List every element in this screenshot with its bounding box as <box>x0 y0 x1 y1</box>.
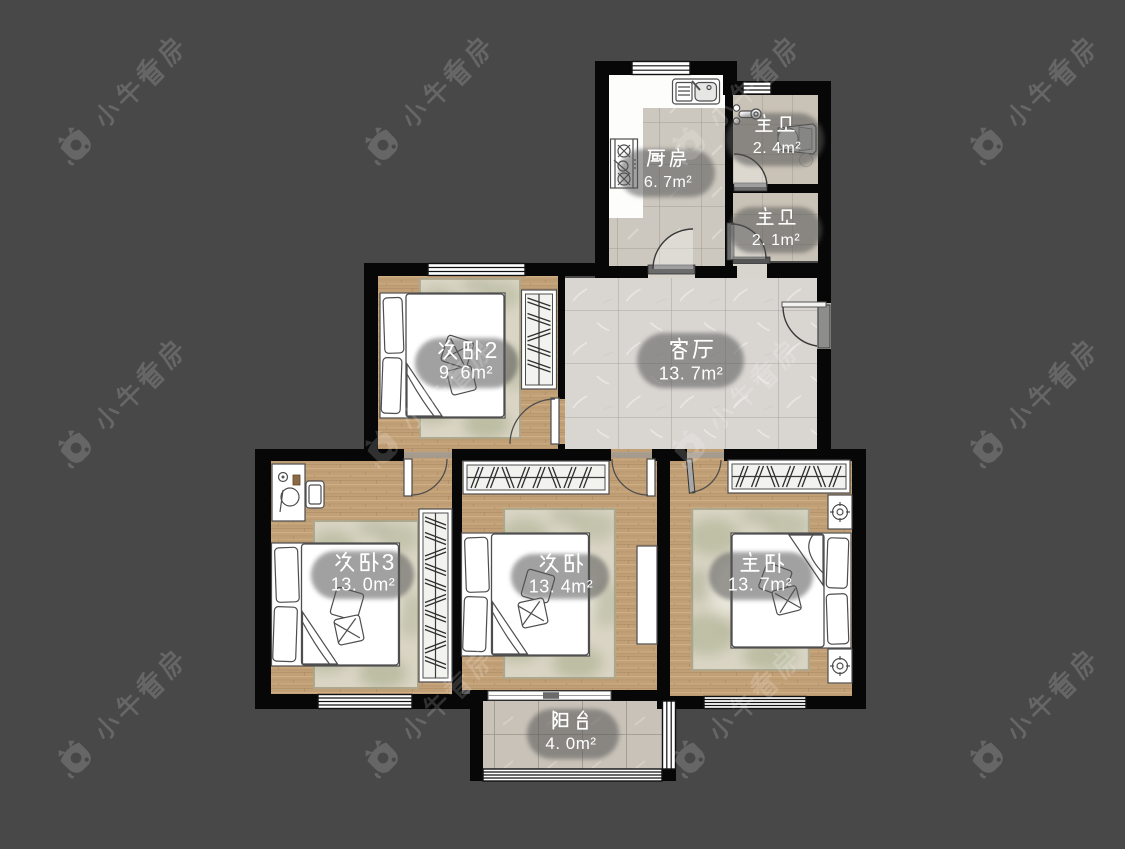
svg-text:13. 0m²: 13. 0m² <box>331 575 396 595</box>
svg-text:2. 1m²: 2. 1m² <box>752 232 801 249</box>
svg-text:13. 7m²: 13. 7m² <box>728 575 793 595</box>
svg-text:4. 0m²: 4. 0m² <box>545 734 596 753</box>
svg-text:2. 4m²: 2. 4m² <box>753 140 802 157</box>
svg-text:6. 7m²: 6. 7m² <box>644 174 693 191</box>
svg-text:13. 4m²: 13. 4m² <box>529 577 594 597</box>
svg-text:3: 3 <box>382 549 395 575</box>
svg-text:13. 7m²: 13. 7m² <box>659 364 724 384</box>
